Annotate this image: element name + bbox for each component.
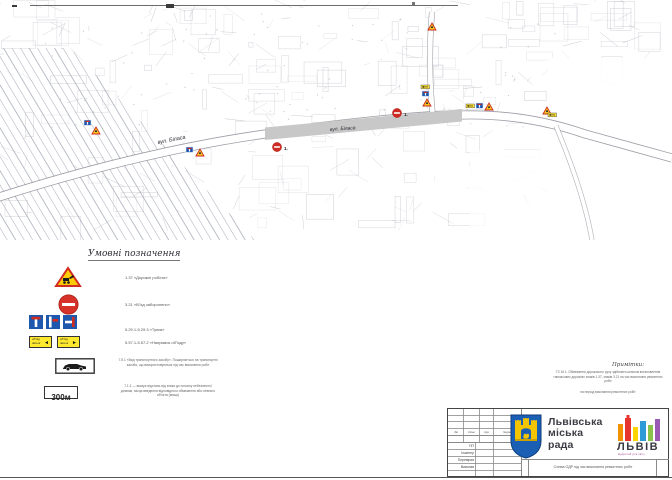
dead-end-signs-icon xyxy=(29,315,77,330)
no-entry-sign-icon xyxy=(272,142,281,151)
sign-number-label: 1. xyxy=(284,146,288,151)
legend-title: Умовні позначення xyxy=(88,249,180,261)
lviv-logo-towers-icon xyxy=(617,415,661,441)
table-role-cell: Виконав xyxy=(449,465,474,469)
lviv-logo-tagline: відкритий для світу xyxy=(618,453,664,456)
table-role-cell: ГІП xyxy=(449,444,474,448)
title-block: Зм Кільк Арк №док ГІП Інженер Перевірив … xyxy=(447,408,669,477)
notes-body: ТЗ 16.1. Обмеження дорожнього руху здійс… xyxy=(552,370,664,384)
legend-row-text: 1.37 «Дорожні роботи» xyxy=(125,275,235,280)
sign-cluster xyxy=(84,120,100,134)
distance-plate-icon: 300м xyxy=(44,386,78,399)
site-plan-map: вул. Біласа вул. Біласа 1. 1. xyxy=(0,0,672,240)
table-header-cell: Арк xyxy=(480,430,493,434)
legend-row-text: 7.5.1 «Вид транспортного засобу». Поширю… xyxy=(118,358,218,367)
frame-mark xyxy=(166,4,174,8)
sheet-top-border xyxy=(30,5,458,6)
distance-plate-label: 300м xyxy=(51,393,70,402)
frame-mark xyxy=(412,2,415,5)
notes-title: Примітки: xyxy=(612,362,644,368)
frame-mark xyxy=(12,5,17,7)
table-role-cell: Перевірив xyxy=(449,458,474,462)
lviv-coat-of-arms xyxy=(509,413,543,459)
notes-footer: на період виконання ремонтних робіт xyxy=(560,390,656,395)
table-header-cell: Кільк xyxy=(464,430,479,434)
no-entry-sign-icon xyxy=(392,108,401,117)
legend-row-text: 7.1.1 — вказує відстань від знака до поч… xyxy=(118,384,218,398)
legend-row-text: 5.29.1-5.29.3 «Тупик» xyxy=(125,327,235,332)
sign-cluster xyxy=(466,103,493,110)
table-header-cell: Зм xyxy=(449,430,463,434)
legend-row-text: 3.21 «В'їзд заборонено» xyxy=(125,302,235,307)
vehicle-type-plate-icon xyxy=(55,358,95,374)
drawing-sheet: вул. Біласа вул. Біласа 1. 1. xyxy=(0,0,672,480)
detour-plates-icon: об'їздdetour ◄ об'їздdetour ► xyxy=(29,336,81,349)
document-title: Схема ОДР під час виконання ремонтних ро… xyxy=(532,465,654,469)
sheet-bottom-border xyxy=(0,477,672,478)
closed-road-section xyxy=(265,109,462,140)
no-entry-sign-icon xyxy=(58,294,79,315)
legend-row-text: 5.57.1-5.57.2 «Напрямок об'їзду» xyxy=(125,340,240,345)
org-name: Львівська міська рада xyxy=(548,417,606,451)
table-role-cell: Інженер xyxy=(449,451,474,455)
street-label: вул. Біласа xyxy=(330,125,356,133)
roadworks-sign-icon xyxy=(54,266,82,288)
lviv-logo-text: ЛЬВІВ xyxy=(617,441,664,453)
sign-number-label: 1. xyxy=(404,112,408,117)
